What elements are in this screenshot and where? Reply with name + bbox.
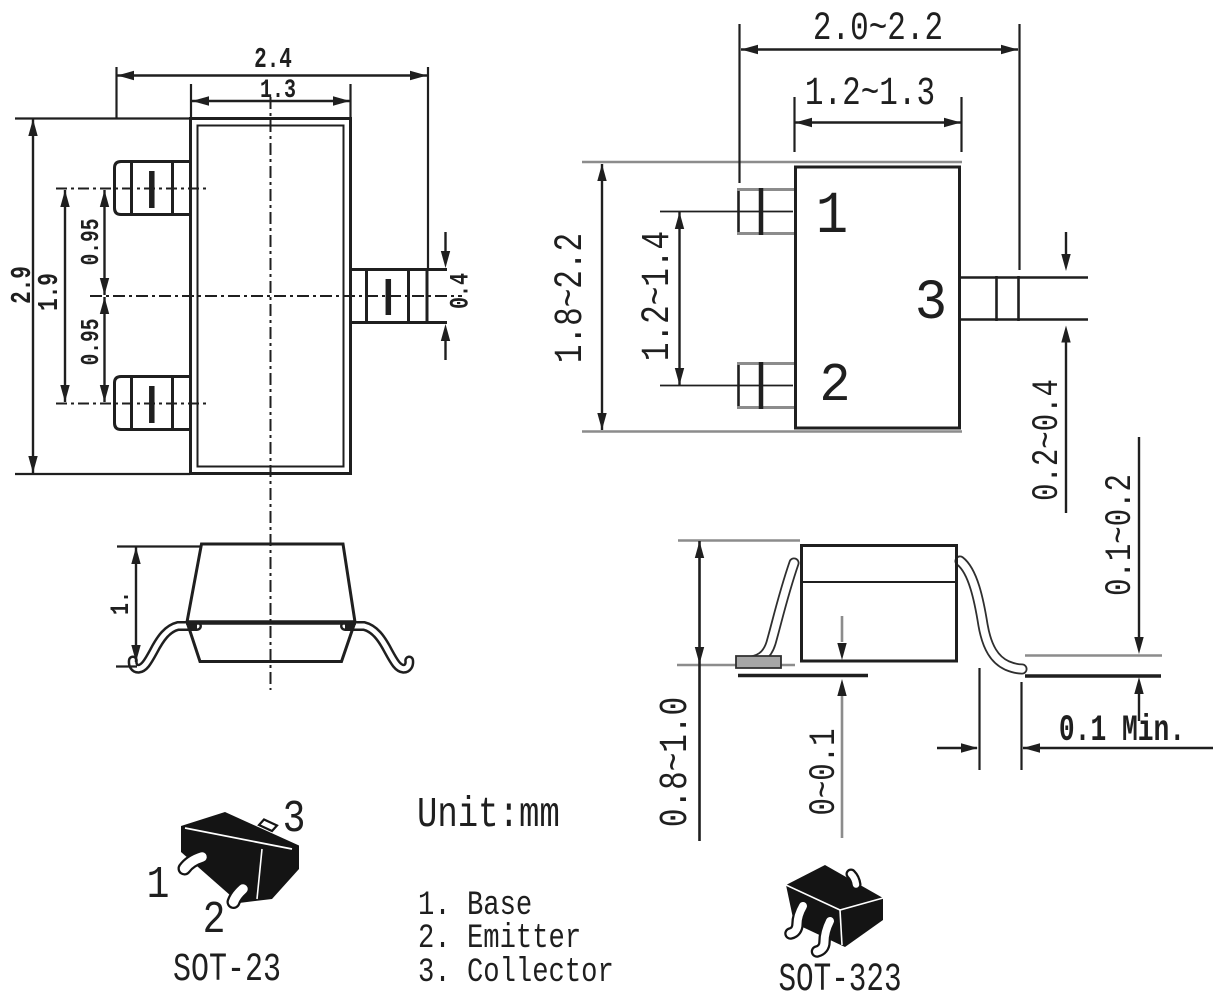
svg-text:2.0~2.2: 2.0~2.2 <box>813 6 943 52</box>
svg-text:1.9: 1.9 <box>34 273 66 311</box>
svg-text:1.: 1. <box>106 591 137 615</box>
svg-text:Unit:mm: Unit:mm <box>417 791 560 840</box>
svg-text:SOT-23: SOT-23 <box>173 947 281 992</box>
svg-text:1: 1 <box>816 184 848 251</box>
svg-text:1.8~2.2: 1.8~2.2 <box>548 233 594 363</box>
svg-text:0.95: 0.95 <box>76 319 106 366</box>
svg-text:0.1~0.2: 0.1~0.2 <box>1099 474 1141 596</box>
svg-text:1.3: 1.3 <box>260 75 296 106</box>
svg-text:0~0.1: 0~0.1 <box>803 729 845 816</box>
svg-text:0.8~1.0: 0.8~1.0 <box>653 697 699 827</box>
svg-text:3: 3 <box>915 271 947 336</box>
svg-text:2: 2 <box>203 894 226 946</box>
svg-text:SOT-323: SOT-323 <box>778 958 901 1000</box>
svg-text:1.2~1.4: 1.2~1.4 <box>635 231 681 361</box>
svg-text:2: 2 <box>819 356 850 417</box>
svg-text:3. Collector: 3. Collector <box>418 953 614 992</box>
svg-text:0.2~0.4: 0.2~0.4 <box>1026 379 1068 501</box>
svg-text:0.95: 0.95 <box>76 219 106 266</box>
svg-text:1: 1 <box>147 859 170 911</box>
svg-text:0.1 Min.: 0.1 Min. <box>1059 709 1185 752</box>
svg-text:0.4: 0.4 <box>446 273 477 309</box>
svg-text:3: 3 <box>283 793 306 845</box>
svg-text:2.4: 2.4 <box>254 44 292 76</box>
svg-text:1.2~1.3: 1.2~1.3 <box>805 71 935 117</box>
